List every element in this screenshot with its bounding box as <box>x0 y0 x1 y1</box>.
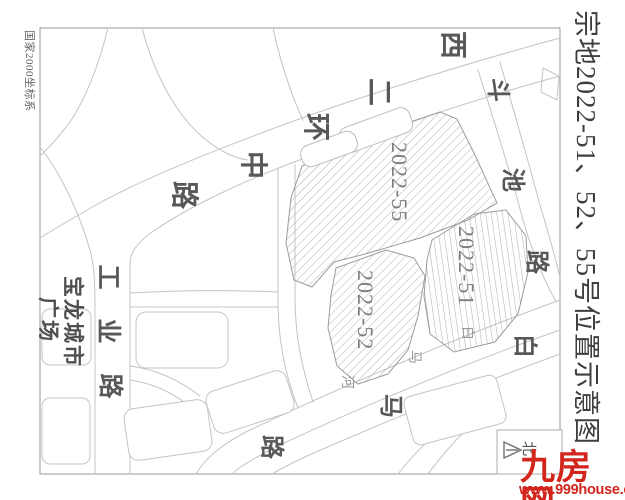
road-char: 二 <box>364 78 395 106</box>
road-char: 路 <box>523 250 551 275</box>
road-char: 环 <box>301 113 332 141</box>
road-char: 中 <box>238 151 269 179</box>
road-char: 工 <box>94 264 122 289</box>
parcel-location-map-page: 北 国家2000坐标系 宗地2022-51、52、55号位置示意图 西 二 环 … <box>0 0 625 500</box>
road-char: 白 <box>511 334 539 358</box>
map-title: 宗地2022-51、52、55号位置示意图 <box>571 10 601 445</box>
coordinate-system-label: 国家2000坐标系 <box>23 30 37 112</box>
river-char: 马 <box>407 350 423 364</box>
road-char: 池 <box>499 168 526 192</box>
map-canvas: 北 国家2000坐标系 宗地2022-51、52、55号位置示意图 西 二 环 … <box>0 0 625 500</box>
road-char: 路 <box>169 181 200 210</box>
road-char: 路 <box>96 373 124 399</box>
parcel-label-2022-55: 2022-55 <box>387 142 412 222</box>
parcel-label-2022-52: 2022-52 <box>353 270 378 350</box>
watermark-url: www.999house.com <box>519 482 625 498</box>
road-char: 西 <box>438 31 469 59</box>
road-char: 路 <box>258 435 286 460</box>
river-char: 白 <box>460 326 476 340</box>
road-char: 斗 <box>484 78 511 102</box>
parcel-label-2022-51: 2022-51 <box>454 226 479 306</box>
road-char: 业 <box>94 318 122 343</box>
road-char: 马 <box>377 394 404 418</box>
river-char: 河 <box>340 375 356 389</box>
block-south-1 <box>123 398 213 461</box>
baolong-line1: 宝龙城市 <box>61 276 85 368</box>
block-west-2 <box>42 398 90 464</box>
baolong-line2: 广场 <box>36 297 60 343</box>
road-label-gongye: 工 业 路 <box>94 264 124 399</box>
block-center-1 <box>136 312 228 368</box>
